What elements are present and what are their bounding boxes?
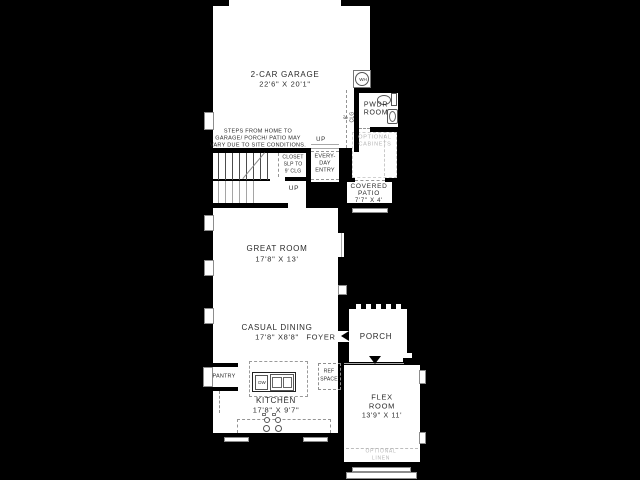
closet-label-line1: CLOSET [282,156,303,161]
wall-garage-top-left [210,0,229,6]
stair-tread [225,153,226,180]
flex-step [346,472,417,479]
entry-label-line1: EVERY- [314,154,335,160]
stair-tread-lower [246,181,247,203]
porch-tooth [396,304,401,310]
stair-tread-lower [218,181,219,203]
stair-tread-lower [225,181,226,203]
closet-label-line3: 9' CLG [285,170,302,175]
water-heater-label: WH [359,78,367,83]
entry-door-dash-bottom [311,179,339,180]
entry-step-line [311,144,339,145]
window-great-room-left-2 [204,260,214,276]
front-door-marker [341,331,349,341]
counter-dash-left [237,419,238,433]
kitchen-sink-basin-right [283,377,292,388]
stair-tread [246,153,247,180]
pwdr-label-line2: ROOM [364,110,389,117]
window-dining-left [204,308,214,324]
stair-tread [267,153,268,180]
optional-cabinets-line1: OPTIONAL [358,135,391,141]
ref-space-line1: REF [324,370,335,375]
window-great-room-left-1 [204,215,214,231]
site-note-line2: GARAGE/ PORCH/ PATIO MAY [215,136,300,142]
dishwasher-label: DW [258,381,266,386]
stair-tread [218,153,219,180]
site-note-line3: VARY DUE TO SITE CONDITIONS. [210,143,306,149]
pwdr-label-line1: PWDR [364,102,388,109]
entry-door-dash-top [311,151,339,152]
patio-dims: 7'7" X 4' [355,198,383,204]
cooktop-burner [275,417,281,423]
dishwasher: DW [255,375,268,390]
water-heater-icon: WH [355,72,369,86]
porch-tooth [386,304,391,310]
patio-label-line2: PATIO [358,191,380,198]
pantry-label: PANTRY [212,374,235,380]
stair-tread-lower [232,181,233,203]
wall-closet-bottom [285,177,306,181]
sink-basin [389,111,396,122]
toilet-tank [391,93,397,106]
wall-garage-top-right [341,0,371,6]
flex-entry-marker [369,356,381,364]
porch-tooth [376,304,381,310]
casual-dining-dims: 17'8" X8'8" [255,333,299,341]
optional-linen-line1: OPTIONAL [366,450,397,455]
garage-dims: 22'6" X 20'1" [259,80,311,88]
window-kitchen-bottom-1 [224,437,249,442]
window-dining-right [338,285,347,295]
flex-room-dims: 13'9" X 11' [362,413,402,420]
stair-landing-wall [213,179,270,181]
kitchen-dims: 17'8" X 9'7" [253,406,300,414]
flex-room-label-line2: ROOM [369,402,395,410]
wall-pantry-bottom [210,387,238,391]
cooktop-burner [275,425,282,432]
floor-plan: WH DW 2-CAR GARAGE 22'6" X 20'1" STEPS F… [0,0,640,480]
kitchen-label: KITCHEN [256,397,296,405]
wall-stair-bottom [210,203,288,208]
porch-tooth [366,304,371,310]
optional-cabinets-line2: CABINETS [358,142,391,148]
patio-opening-dash [355,180,385,181]
ceiling-height-line2: CLG [350,112,356,123]
wall-flex-top-right [403,358,424,365]
casual-dining-label: CASUAL DINING [241,324,312,332]
counter-dash [237,419,331,420]
entry-label-line2: DAY [319,161,331,167]
ceiling-height-label: 8' CLG [345,112,356,123]
window-flex-right-1 [419,370,426,384]
closet-label-line2: SLP TO [284,163,303,168]
wall-pwdr-right [398,88,403,132]
entry-label-line3: ENTRY [315,168,335,174]
stair-tread [232,153,233,180]
stair-tread [239,153,240,180]
garage-label: 2-CAR GARAGE [251,71,320,79]
cooktop-burner [264,417,270,423]
great-room-label: GREAT ROOM [247,245,308,253]
porch-label: PORCH [360,333,392,341]
kitchen-sink-basin-left [272,377,282,388]
great-room-dims: 17'8" X 13' [255,255,298,263]
closet-dash [278,153,279,177]
patio-step [352,208,388,213]
site-note-line1: STEPS FROM HOME TO [224,129,292,135]
window-garage-left [204,112,214,130]
foyer-label: FOYER [306,333,335,341]
up-stairs-label: UP [289,186,299,193]
pantry-closet-dash [219,391,220,413]
wall-pantry-top [210,363,238,367]
up-garage-label: UP [316,137,326,143]
entry-step-line [311,148,339,149]
flex-room-label-line1: FLEX [371,393,393,401]
stair-tread-lower [239,181,240,203]
window-flex-right-2 [419,432,426,444]
stair-tread-lower [253,181,254,203]
wall-pwdr-bottom [370,127,403,132]
window-glass-line [341,233,342,257]
porch-tooth [356,304,361,310]
ref-space-line2: SPACE [320,378,338,383]
window-kitchen-bottom-2 [303,437,328,442]
cooktop-burner [263,425,270,432]
counter-dash-right [330,419,331,433]
pwdr-door-dash [359,128,370,129]
optional-linen-line2: LINEN [372,457,390,462]
